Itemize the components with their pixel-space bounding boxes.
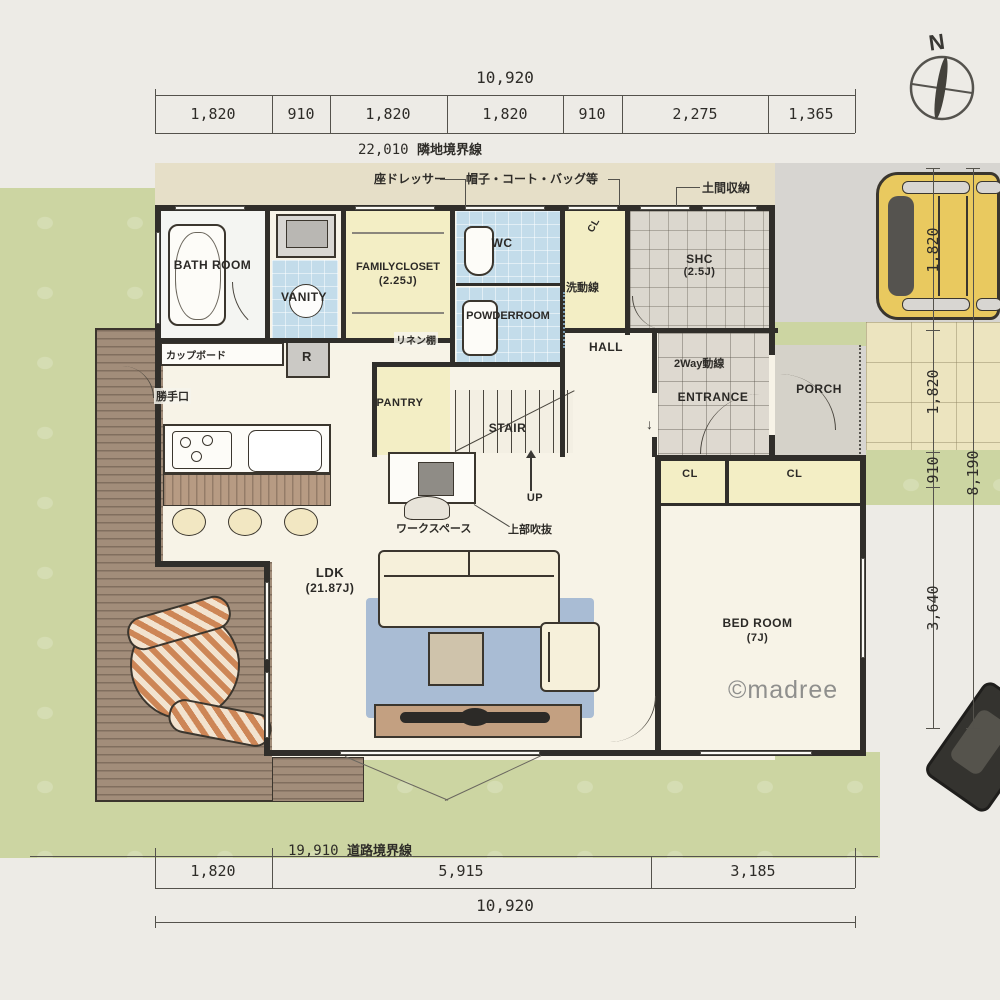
watermark: ©madree <box>728 676 838 705</box>
room-label-bedroom-size: (7J) <box>690 632 825 644</box>
car-windshield <box>888 196 914 296</box>
annotation-dresser: 座ドレッサー <box>374 170 446 187</box>
wall <box>372 362 565 367</box>
leader-line <box>676 187 700 188</box>
dim-line <box>155 922 855 923</box>
dim-bottom-boundary: 19,910 道路境界線 <box>288 840 412 859</box>
leader-line <box>676 187 677 206</box>
dim-top-seg-4: 910 <box>542 105 642 123</box>
car-rail-bottom-2 <box>976 298 1000 311</box>
car-rail-top <box>902 181 970 194</box>
dim-right-seg-1: 1,820 <box>924 362 942 422</box>
dim-top-total: 10,920 <box>455 68 555 87</box>
dim-bottom-seg-0: 1,820 <box>163 862 263 880</box>
annotation-void-above: 上部吹抜 <box>508 521 552 537</box>
room-label-bath: BATH ROOM <box>160 258 265 272</box>
dim-tick <box>155 848 156 888</box>
window <box>265 582 269 660</box>
window <box>340 751 540 755</box>
dim-top-seg-6: 1,365 <box>761 105 861 123</box>
dim-bottom-boundary-value: 19,910 <box>288 843 339 859</box>
dim-bottom-boundary-label: 道路境界線 <box>347 844 412 859</box>
dim-tick <box>155 89 156 133</box>
window <box>568 206 618 210</box>
wall <box>341 205 346 343</box>
wall-closet-front <box>655 503 860 506</box>
room-label-stair: STAIR <box>460 421 555 435</box>
dim-right-seg-2: 910 <box>924 440 942 500</box>
stairs-up-arrow <box>530 455 532 491</box>
tv-stand <box>460 708 490 726</box>
annotation-wash-flow: 洗動線 <box>566 279 599 295</box>
room-label-vanity: VANITY <box>266 290 342 304</box>
stool-2 <box>228 508 262 536</box>
dim-line <box>155 95 855 96</box>
car-rail-top-2 <box>976 181 1000 194</box>
wall <box>652 437 657 457</box>
window <box>156 232 160 324</box>
dim-line <box>155 888 855 889</box>
room-label-pantry: PANTRY <box>360 397 440 409</box>
annotation-doma-storage: 土間収納 <box>702 179 750 196</box>
leader-line <box>440 179 465 180</box>
compass: N <box>903 32 981 124</box>
dim-tick <box>272 848 273 888</box>
dim-top-seg-3: 1,820 <box>455 105 555 123</box>
room-label-porch: PORCH <box>780 382 858 396</box>
wood-deck-strip <box>95 328 163 802</box>
room-label-closet-left: CL <box>655 468 725 480</box>
dim-bottom-total: 10,920 <box>455 896 555 915</box>
dim-bottom-seg-1: 5,915 <box>411 862 511 880</box>
dim-top-seg-1: 910 <box>251 105 351 123</box>
leader-line <box>608 179 619 180</box>
room-label-entrance: ENTRANCE <box>650 390 776 404</box>
dim-tick <box>926 728 940 729</box>
dim-tick <box>926 330 940 331</box>
powder-sink <box>462 300 498 356</box>
floor-pantry <box>377 367 450 455</box>
window <box>700 751 812 755</box>
workspace-monitor <box>418 462 454 496</box>
wall-closet-divider <box>725 455 729 505</box>
armchair-seatline <box>548 632 550 682</box>
annotation-linen-shelf: リネン棚 <box>394 332 438 347</box>
stool-1 <box>172 508 206 536</box>
leader-line <box>465 179 466 207</box>
wall <box>372 362 377 457</box>
wall <box>652 333 657 393</box>
stove-burner-1 <box>180 437 191 448</box>
dim-top-seg-5: 2,275 <box>645 105 745 123</box>
dim-right-seg-0: 1,820 <box>924 220 942 280</box>
dim-tick <box>926 168 940 169</box>
island-counter-wood <box>163 474 331 506</box>
dim-right-overall: 8,190 <box>964 443 982 503</box>
dim-top-boundary-value: 22,010 <box>358 142 409 158</box>
floor-plan-canvas: ↓ BATH ROOM VANITY FAMILYCLOSET (2.25J) … <box>0 0 1000 1000</box>
leader-line <box>619 179 620 206</box>
wall <box>560 328 778 333</box>
window <box>175 206 245 210</box>
hall-arrow: ↓ <box>646 416 653 432</box>
dim-line <box>155 133 855 134</box>
room-label-bedroom: BED ROOM <box>690 616 825 630</box>
stove-burner-3 <box>191 451 202 462</box>
room-label-shc-size: (2.5J) <box>630 266 769 278</box>
dim-tick <box>155 916 156 928</box>
dim-tick <box>855 916 856 928</box>
annotation-back-door: 勝手口 <box>154 388 191 404</box>
dim-top-boundary-label: 隣地境界線 <box>417 143 482 158</box>
dim-bottom-seg-2: 3,185 <box>703 862 803 880</box>
room-label-wc: WC <box>482 236 522 250</box>
hanger-bar-1 <box>352 232 444 234</box>
annotation-coat-storage: 帽子・コート・バッグ等 <box>466 170 598 187</box>
room-label-ldk: LDK <box>280 565 380 580</box>
sofa-cushion-line <box>468 552 470 576</box>
annotation-workspace: ワークスペース <box>396 520 471 536</box>
dim-tick <box>966 728 980 729</box>
room-label-ldk-size: (21.87J) <box>280 581 380 595</box>
vanity-mirror <box>286 220 328 248</box>
dim-tick <box>966 168 980 169</box>
hanger-bar-2 <box>352 312 444 314</box>
stove-burner-2 <box>202 435 213 446</box>
stairs-up-arrowhead <box>526 450 536 458</box>
coffee-table <box>428 632 484 686</box>
room-label-closet-right: CL <box>729 468 860 480</box>
room-label-shc: SHC <box>630 252 769 266</box>
dim-top-boundary: 22,010 隣地境界線 <box>358 139 482 158</box>
wall <box>769 435 775 461</box>
room-label-family-closet-size: (2.25J) <box>344 275 452 287</box>
dim-tick <box>651 856 652 888</box>
compass-n-label: N <box>927 32 946 56</box>
wall <box>655 455 866 461</box>
road-boundary-line <box>30 856 878 857</box>
car-rail-bottom <box>902 298 970 311</box>
window <box>465 206 545 210</box>
wash-flow-dotted <box>563 292 565 348</box>
workspace-chair <box>404 496 450 520</box>
annotation-cupboard: カップボード <box>166 347 226 362</box>
window <box>640 206 690 210</box>
dim-tick <box>855 848 856 888</box>
annotation-fridge: R <box>302 349 311 364</box>
annotation-two-way-flow: 2Way動線 <box>674 355 724 371</box>
kitchen-sink <box>248 430 322 472</box>
wall <box>655 455 661 756</box>
dim-top-seg-2: 1,820 <box>338 105 438 123</box>
wall <box>155 561 270 567</box>
window <box>702 206 757 210</box>
window <box>861 558 865 658</box>
window <box>265 672 269 738</box>
room-label-family-closet: FAMILYCLOSET <box>344 261 452 273</box>
toilet <box>464 226 494 276</box>
wood-deck-ext <box>272 757 364 802</box>
bathtub-inner <box>175 232 221 320</box>
dim-tick <box>447 95 448 133</box>
room-label-powder: POWDERROOM <box>456 310 560 322</box>
wall <box>456 283 560 286</box>
dim-right-south: 3,640 <box>924 578 942 638</box>
car-door-seam-2 <box>966 196 968 296</box>
room-label-hall: HALL <box>567 340 645 354</box>
stool-3 <box>284 508 318 536</box>
dim-top-seg-0: 1,820 <box>163 105 263 123</box>
room-label-up: UP <box>520 492 550 504</box>
window <box>355 206 435 210</box>
